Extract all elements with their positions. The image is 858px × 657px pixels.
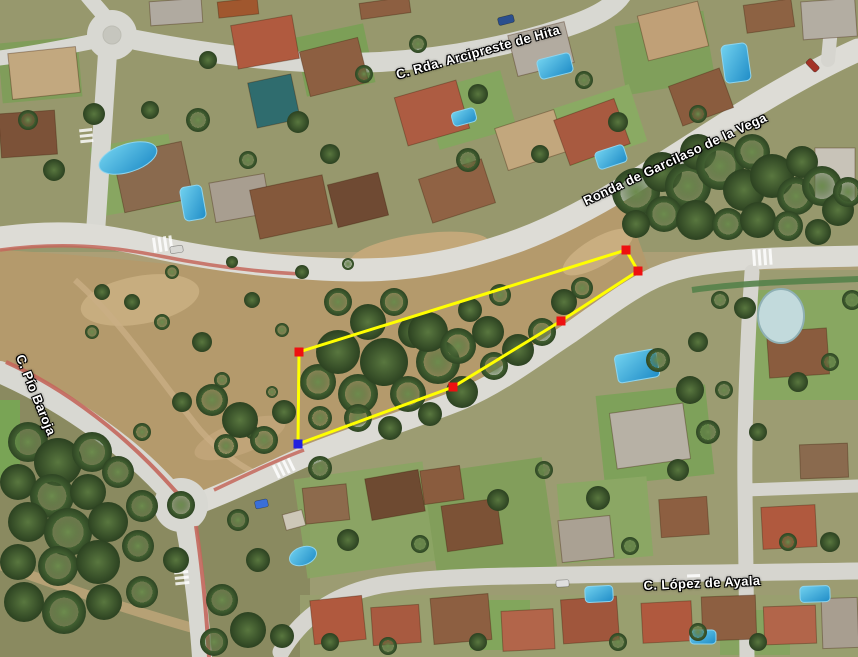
vertex-marker-point[interactable] (557, 317, 566, 326)
map-viewport[interactable]: C. Rda. Arcipreste de Hita Ronda de Garc… (0, 0, 858, 657)
measurement-polygon[interactable] (298, 250, 638, 444)
vertex-marker-point[interactable] (295, 348, 304, 357)
vertex-marker-start[interactable] (294, 440, 303, 449)
vertex-marker-point[interactable] (634, 267, 643, 276)
measurement-overlay[interactable] (0, 0, 858, 657)
vertex-marker-point[interactable] (449, 383, 458, 392)
vertex-marker-point[interactable] (622, 246, 631, 255)
